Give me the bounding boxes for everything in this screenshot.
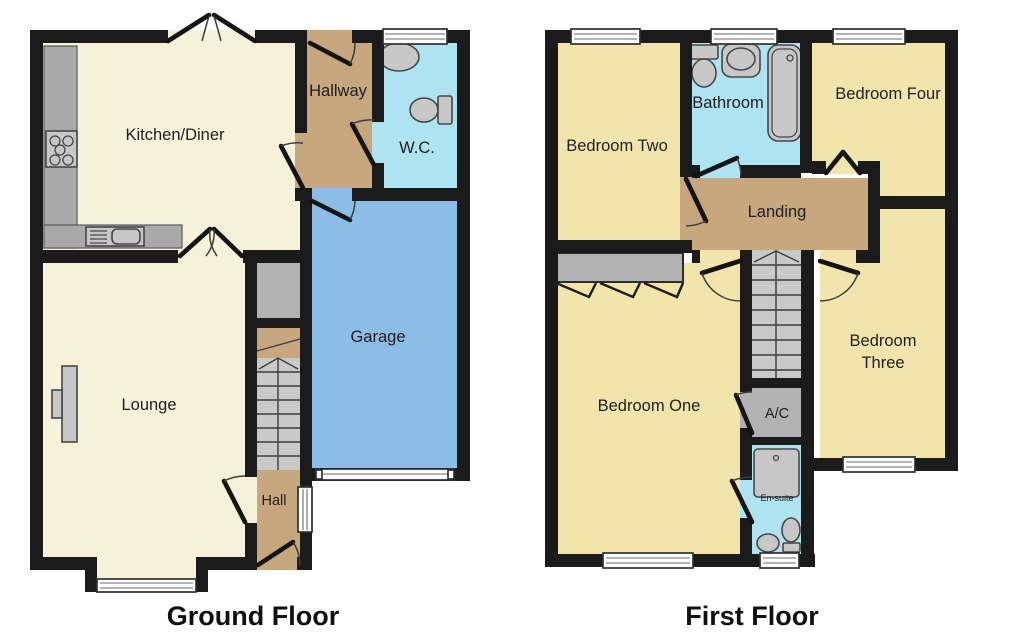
hob-icon bbox=[46, 131, 77, 167]
first-floor-plan: Bedroom Two Bathroom Bedroom Four Landin… bbox=[545, 29, 958, 631]
label-bedroom-three-line2: Three bbox=[861, 354, 904, 372]
bedroom-one-window bbox=[603, 553, 693, 568]
room-hallway bbox=[307, 43, 372, 190]
floorplan-canvas: Kitchen/Diner Hallway W.C. Garage Lounge… bbox=[0, 0, 1024, 638]
room-lounge-bay bbox=[97, 555, 196, 581]
ensuite-window bbox=[760, 553, 799, 568]
sink-icon bbox=[86, 227, 144, 246]
label-hall: Hall bbox=[262, 493, 287, 509]
label-bathroom: Bathroom bbox=[692, 94, 764, 112]
bedroom-four-window bbox=[833, 29, 905, 44]
label-kitchen-diner: Kitchen/Diner bbox=[125, 126, 225, 144]
stairs-top-landing bbox=[257, 328, 300, 358]
garage-door bbox=[316, 469, 454, 480]
label-wc: W.C. bbox=[399, 139, 435, 157]
first-floor-title: First Floor bbox=[685, 601, 819, 631]
room-hall bbox=[257, 470, 300, 558]
bedroom-three-window bbox=[843, 457, 915, 472]
room-kitchen-diner bbox=[43, 43, 300, 250]
label-hallway: Hallway bbox=[309, 82, 368, 100]
wc-basin-icon bbox=[379, 43, 419, 71]
bathroom-toilet-icon bbox=[690, 45, 718, 87]
ground-floor-title: Ground Floor bbox=[167, 601, 340, 631]
shower-icon bbox=[754, 449, 799, 497]
ground-floor-plan: Kitchen/Diner Hallway W.C. Garage Lounge… bbox=[30, 15, 470, 631]
ensuite-toilet-icon bbox=[782, 518, 800, 552]
lounge-bay-window bbox=[97, 579, 196, 592]
label-bedroom-three-line1: Bedroom bbox=[850, 332, 917, 350]
wardrobe bbox=[553, 253, 683, 297]
floorplan-page: Kitchen/Diner Hallway W.C. Garage Lounge… bbox=[0, 0, 1024, 638]
label-bedroom-four: Bedroom Four bbox=[835, 85, 941, 103]
hall-window bbox=[298, 487, 312, 532]
bathtub-icon bbox=[768, 45, 801, 141]
label-lounge: Lounge bbox=[121, 396, 176, 414]
label-garage: Garage bbox=[350, 328, 405, 346]
label-en-suite: En-suite bbox=[760, 493, 793, 503]
label-landing: Landing bbox=[748, 203, 807, 221]
label-ac: A/C bbox=[765, 406, 789, 422]
label-bedroom-two: Bedroom Two bbox=[566, 137, 668, 155]
wc-window bbox=[383, 29, 447, 44]
understairs-cupboard bbox=[257, 263, 300, 318]
ensuite-basin-icon bbox=[757, 534, 779, 552]
bathroom-window bbox=[711, 29, 777, 44]
bedroom-two-window bbox=[571, 29, 640, 44]
wc-toilet-icon bbox=[410, 96, 452, 124]
label-bedroom-one: Bedroom One bbox=[598, 397, 701, 415]
bathroom-basin-icon bbox=[722, 44, 760, 77]
